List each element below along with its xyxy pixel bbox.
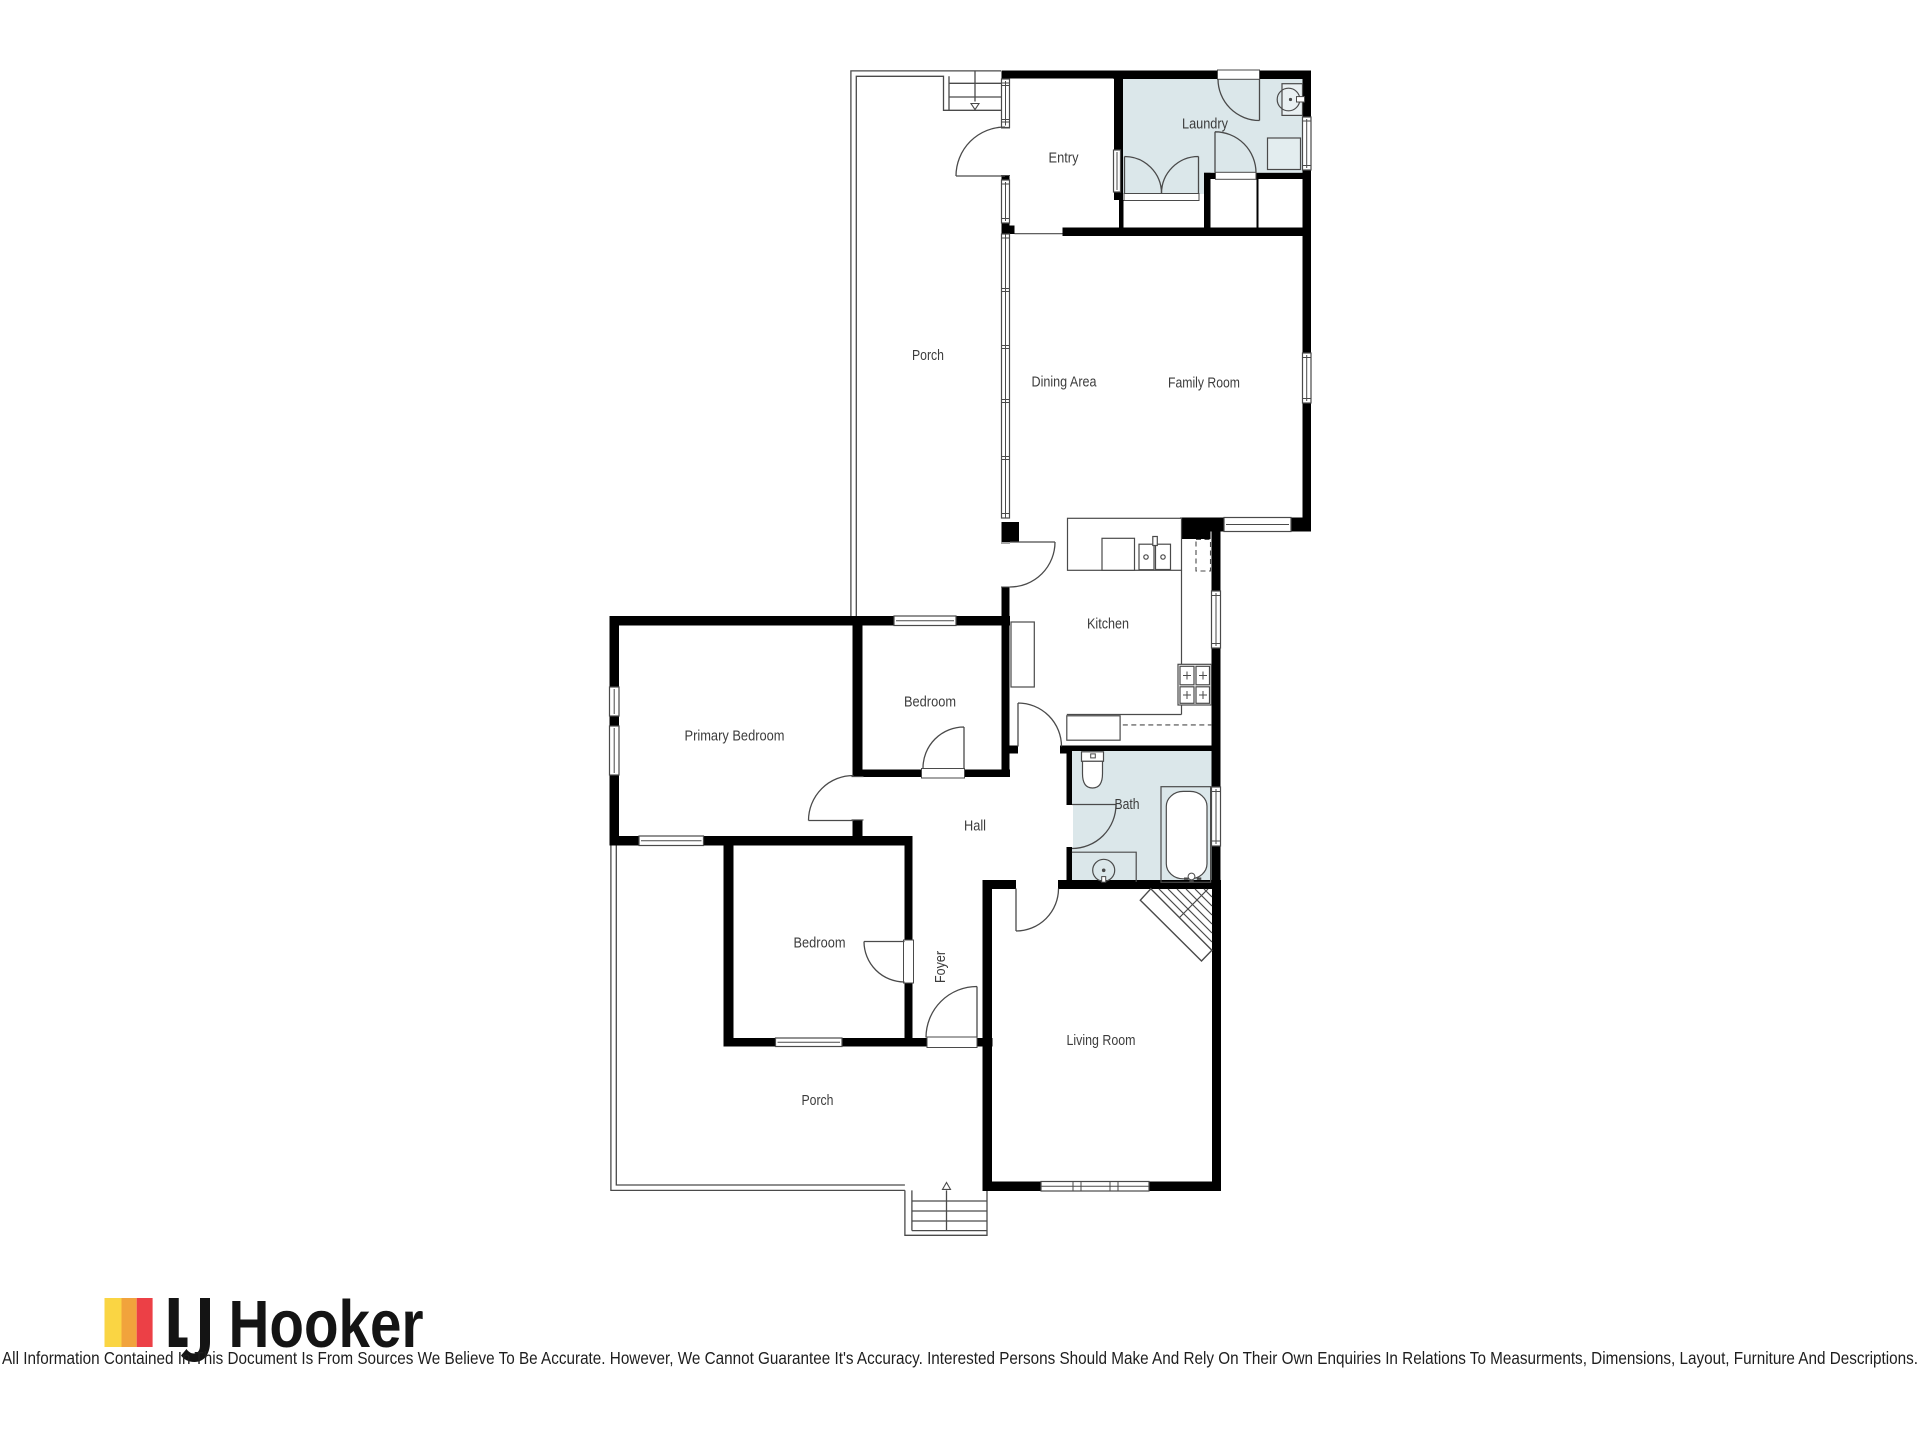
svg-text:Family Room: Family Room [1168,375,1240,392]
svg-text:Hall: Hall [964,818,986,835]
svg-text:Entry: Entry [1049,150,1079,167]
svg-text:Primary Bedroom: Primary Bedroom [685,728,785,745]
svg-text:Bedroom: Bedroom [904,694,956,711]
svg-text:Living Room: Living Room [1067,1032,1136,1049]
svg-text:Bedroom: Bedroom [794,935,846,952]
svg-text:Laundry: Laundry [1182,116,1228,133]
svg-text:Bath: Bath [1115,796,1140,813]
svg-text:All Information Contained In T: All Information Contained In This Docume… [2,1348,1918,1368]
svg-text:Porch: Porch [802,1092,834,1109]
svg-text:Dining Area: Dining Area [1032,374,1098,391]
svg-text:Kitchen: Kitchen [1087,616,1129,633]
svg-text:Porch: Porch [912,347,944,364]
svg-text:Foyer: Foyer [932,951,949,983]
